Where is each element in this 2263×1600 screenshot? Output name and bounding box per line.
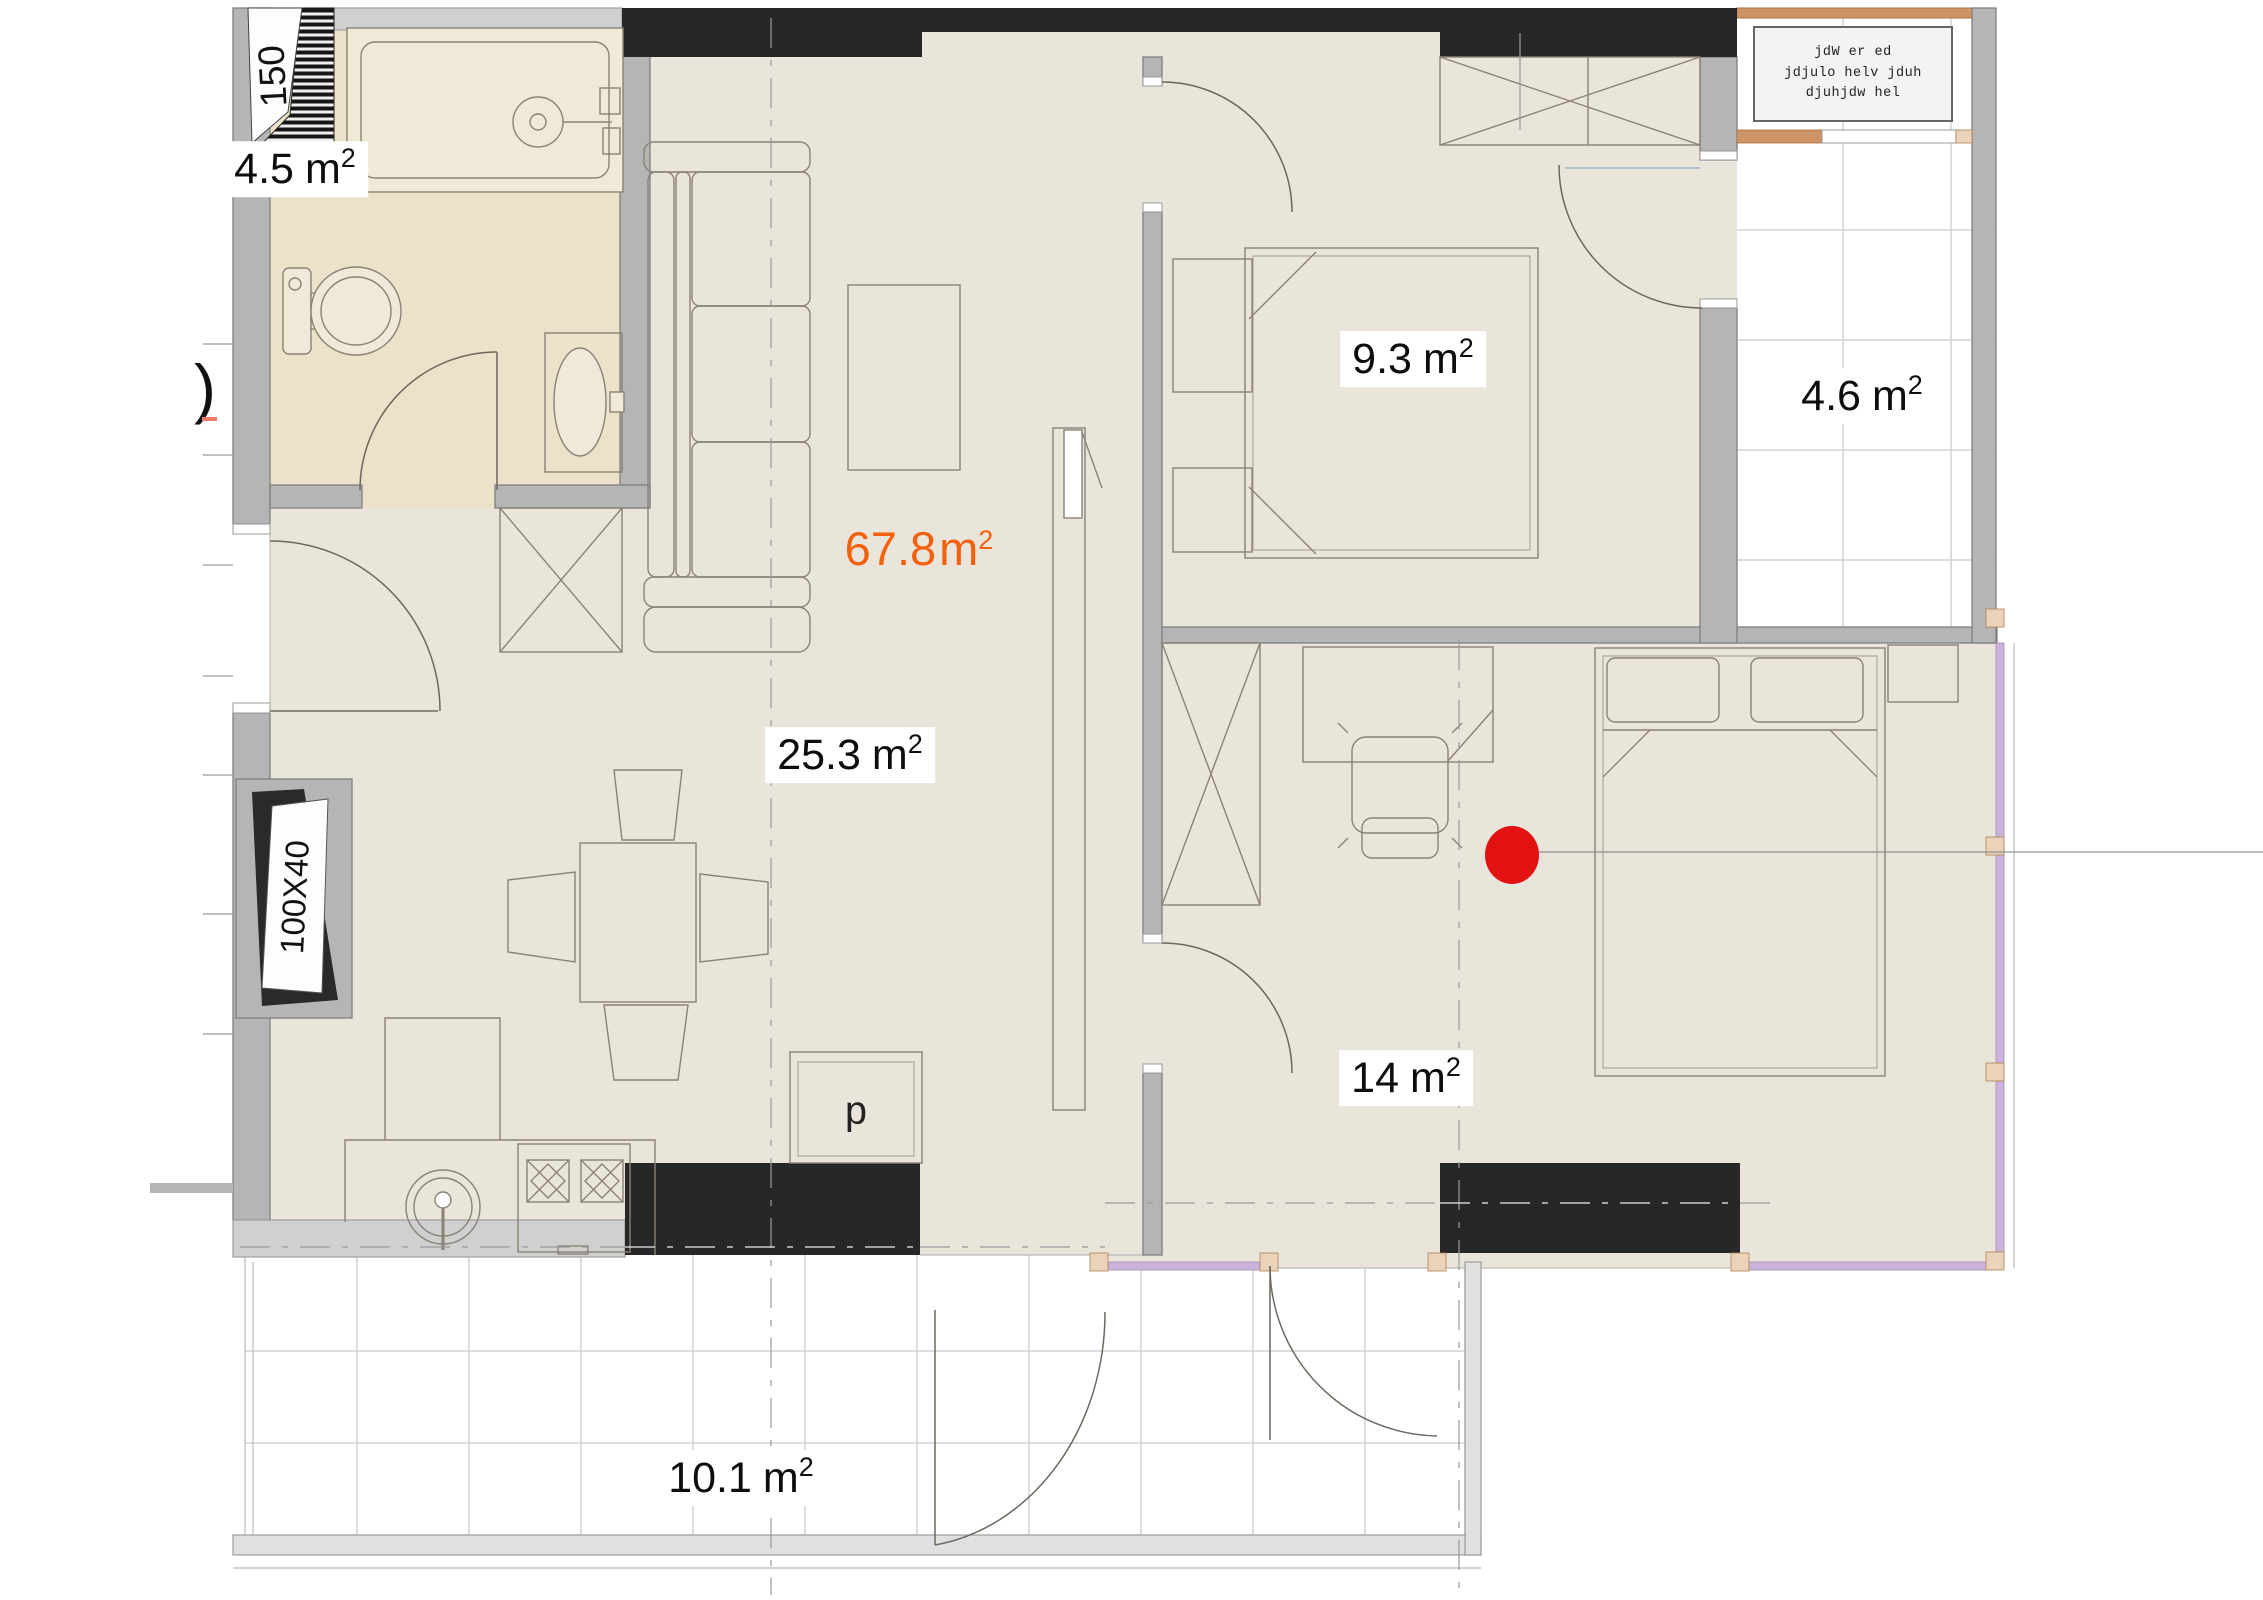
wall-bathroom-right (620, 28, 650, 508)
wall-top-black-2 (1440, 8, 1737, 57)
room-area-label-bathroom: 4.5m2 (222, 141, 368, 197)
door-jamb (1143, 1064, 1162, 1073)
room-area-label-bedroom-large: 14m2 (1339, 1050, 1473, 1106)
dimension-fragment: ) (194, 350, 216, 426)
floor-plan-canvas: 4.5m2 25.3m2 9.3m2 14m2 4.6m2 10.1m2 67.… (0, 0, 2263, 1600)
red-tick (202, 417, 217, 421)
wall-bedroom1-right-upper (1700, 57, 1737, 160)
window-marker-top-label: 150 (250, 44, 295, 108)
wall-bathroom-bottom-left (270, 485, 362, 508)
wall-top-black-1 (622, 8, 922, 57)
floors (245, 8, 2004, 1547)
wall-side-balcony-right (1972, 8, 1996, 643)
toilet (283, 267, 401, 355)
wall-bottom-black-2 (1440, 1163, 1740, 1253)
door-jamb (1700, 151, 1737, 160)
wall-top-black-thin (922, 8, 1440, 32)
bottom-balcony-railing-right (1465, 1262, 1481, 1555)
wall-bottom-black-1 (625, 1163, 920, 1255)
window-bedroom-large-right (1996, 643, 2004, 1263)
wall-mid-bottom (1143, 1073, 1162, 1255)
bathtub (347, 28, 623, 192)
note-line: jdW er ed (1814, 43, 1891, 64)
room-area-label-balcony-bottom: 10.1m2 (656, 1450, 826, 1506)
location-marker-dot[interactable] (1485, 826, 1539, 884)
wall-bathroom-bottom-right (495, 485, 650, 508)
window-marker-left-label: 100X40 (273, 839, 317, 955)
total-area-label: 67.8m2 (833, 520, 1006, 578)
door-jamb (1143, 77, 1162, 86)
room-area-label-balcony-side: 4.6m2 (1789, 368, 1935, 424)
room-area-label-bedroom-small: 9.3m2 (1340, 331, 1486, 387)
door-jamb (233, 703, 270, 713)
dimension-tick-thick (150, 1183, 233, 1193)
door-jamb (233, 524, 270, 534)
window-bedroom-large-bottom-left (1105, 1262, 1270, 1270)
door-jamb (1143, 934, 1162, 943)
side-balcony-window (1822, 130, 1956, 143)
note-line: jdjulo helv jduh (1784, 64, 1922, 85)
door-jamb (1700, 299, 1737, 308)
side-balcony-divider-rail (1737, 130, 1822, 143)
room-area-label-living: 25.3m2 (765, 727, 935, 783)
wall-bedroom1-right-lower (1700, 308, 1737, 643)
window-bedroom-large-bottom-right (1740, 1262, 1996, 1270)
pantry-label: p (844, 1092, 868, 1137)
floor-plan-drawing (0, 0, 2263, 1600)
bottom-balcony-floor-right (1105, 1268, 1465, 1547)
note-line: djuhjdw hel (1806, 84, 1901, 105)
wall-bedrooms-divider (1162, 627, 1997, 643)
side-balcony-railing (1737, 8, 1972, 18)
plan-note-box: jdW er ed jdjulo helv jduh djuhjdw hel (1753, 26, 1953, 122)
bottom-balcony-railing (233, 1535, 1481, 1555)
door-jamb (1143, 203, 1162, 212)
wall-mid (1143, 212, 1162, 940)
